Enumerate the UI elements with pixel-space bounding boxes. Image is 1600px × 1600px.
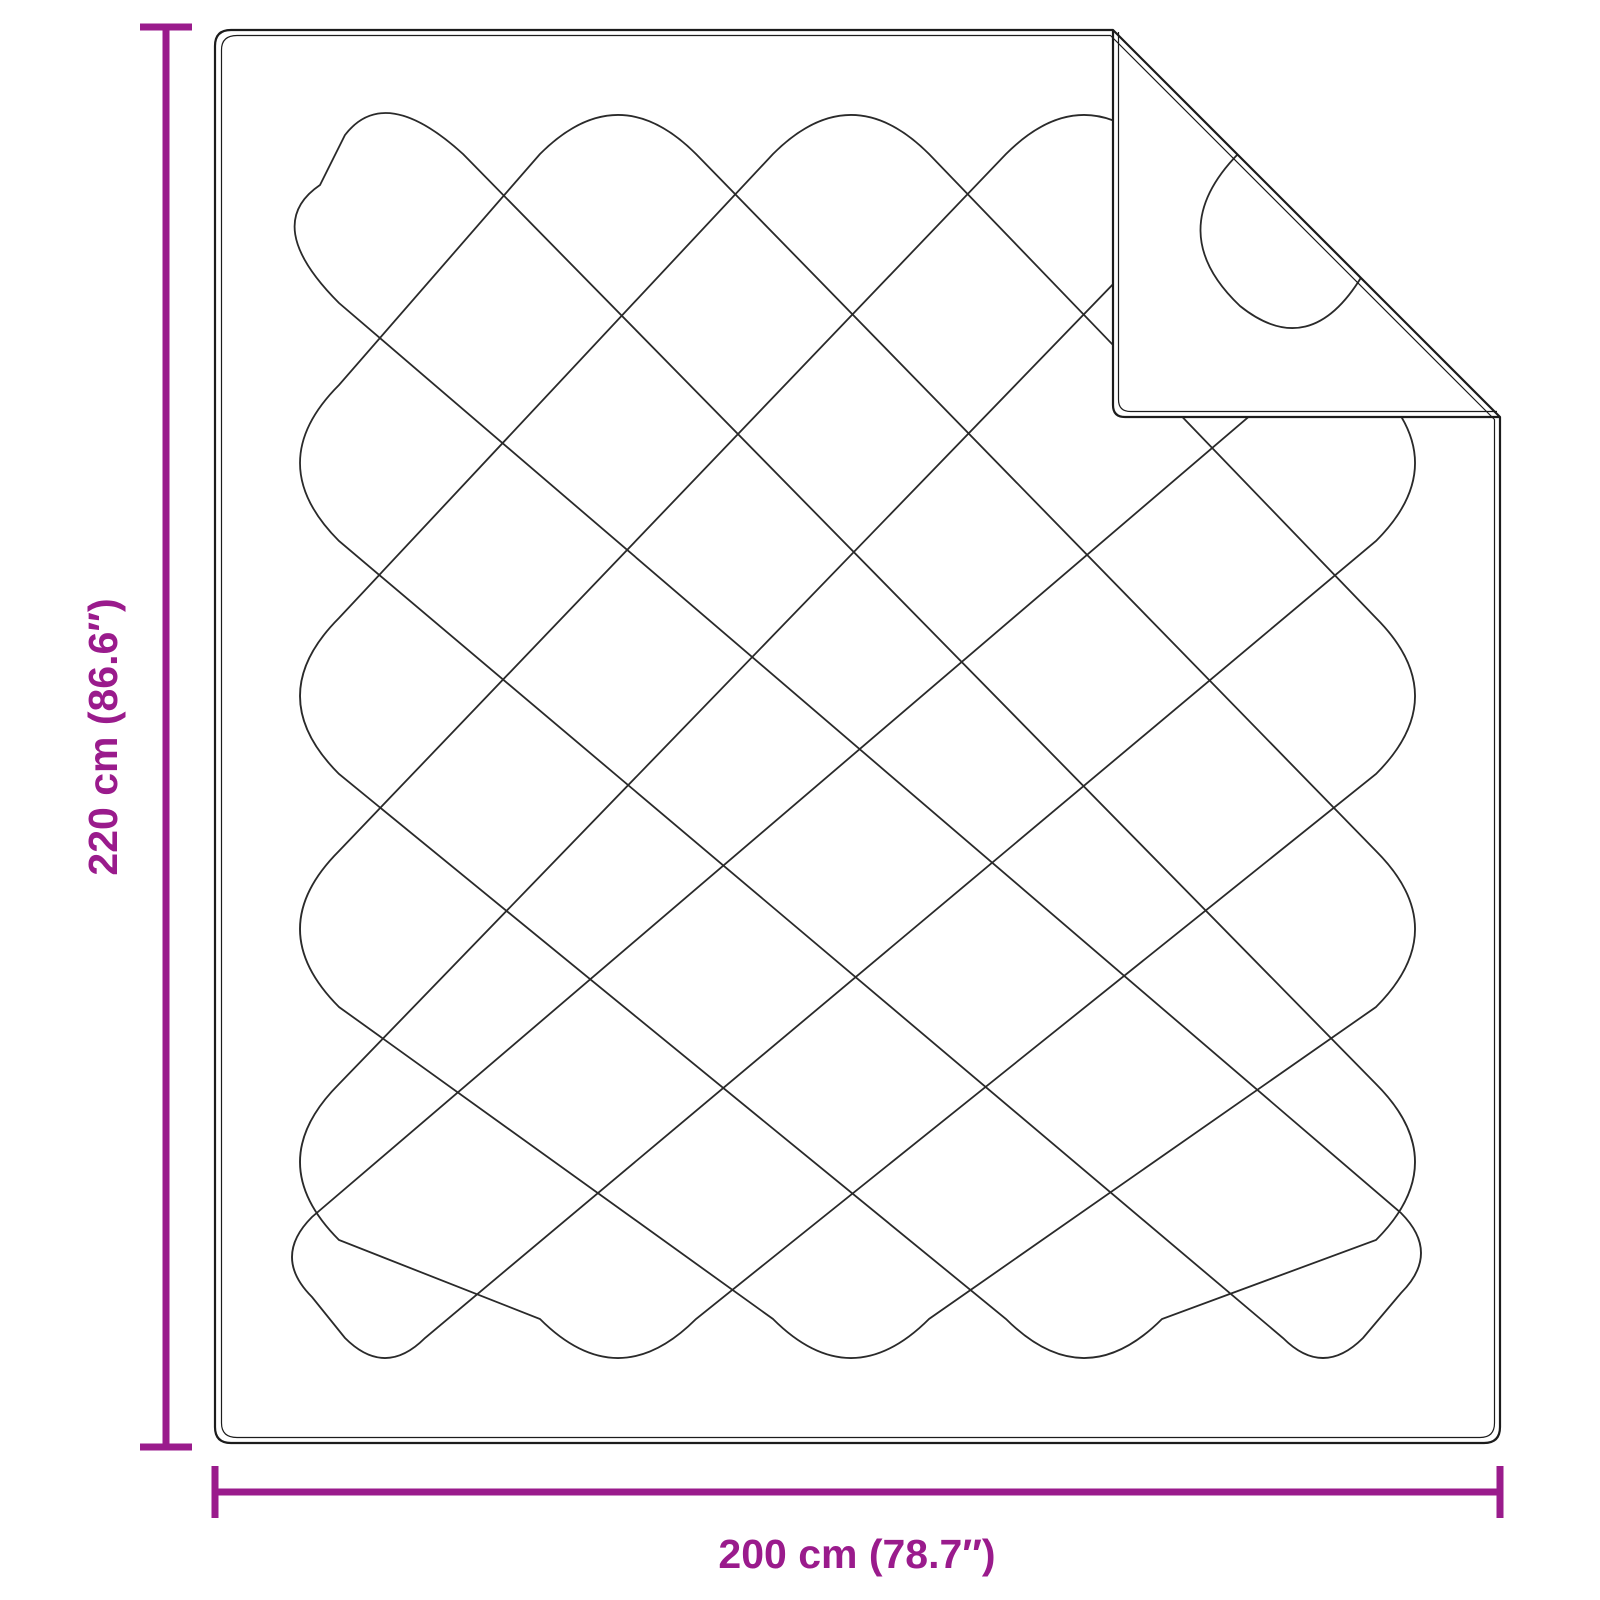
fold-corner-edge-inner <box>1119 32 1498 412</box>
page-root: 220 cm (86.6″) 200 cm (78.7″) <box>0 0 1600 1600</box>
width-dimension-label: 200 cm (78.7″) <box>718 1531 995 1577</box>
blanket-diagram: 220 cm (86.6″) 200 cm (78.7″) <box>0 0 1600 1600</box>
height-dimension <box>140 27 192 1447</box>
quilt-stitch-pattern <box>292 113 1421 1358</box>
height-dimension-label: 220 cm (86.6″) <box>80 598 126 875</box>
blanket <box>215 30 1500 1443</box>
fold-corner-stitch-pattern <box>1200 154 1362 328</box>
blanket-outline <box>215 30 1500 1443</box>
width-dimension <box>215 1466 1500 1518</box>
blanket-outline-inner <box>222 36 1495 1438</box>
